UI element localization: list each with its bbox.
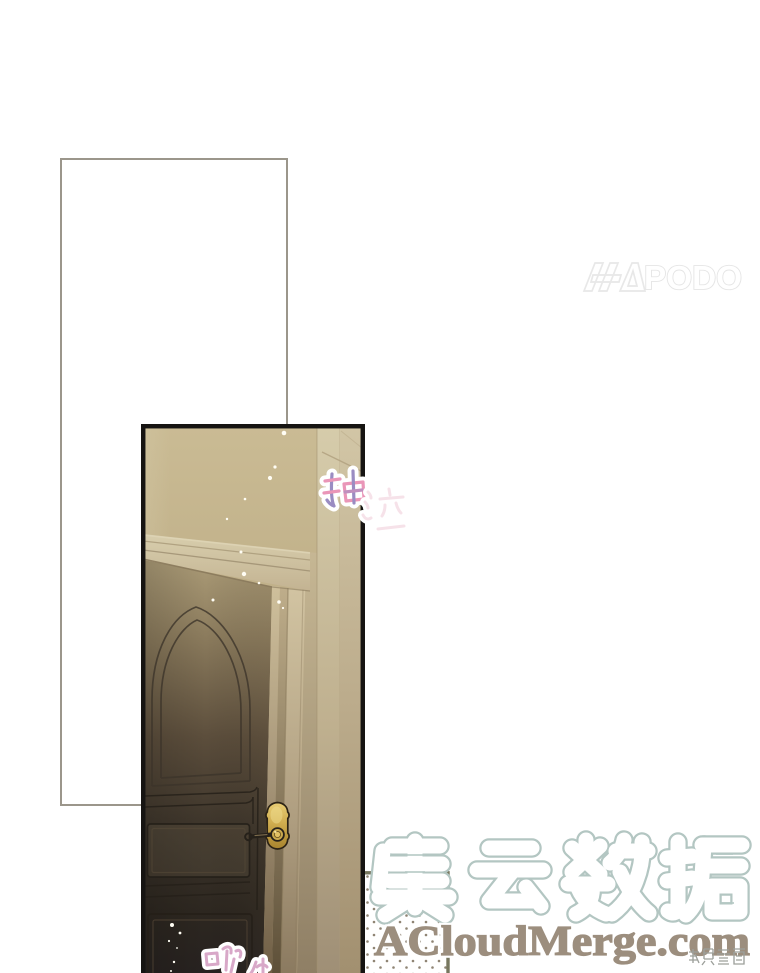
svg-text:PODO: PODO xyxy=(644,259,742,296)
